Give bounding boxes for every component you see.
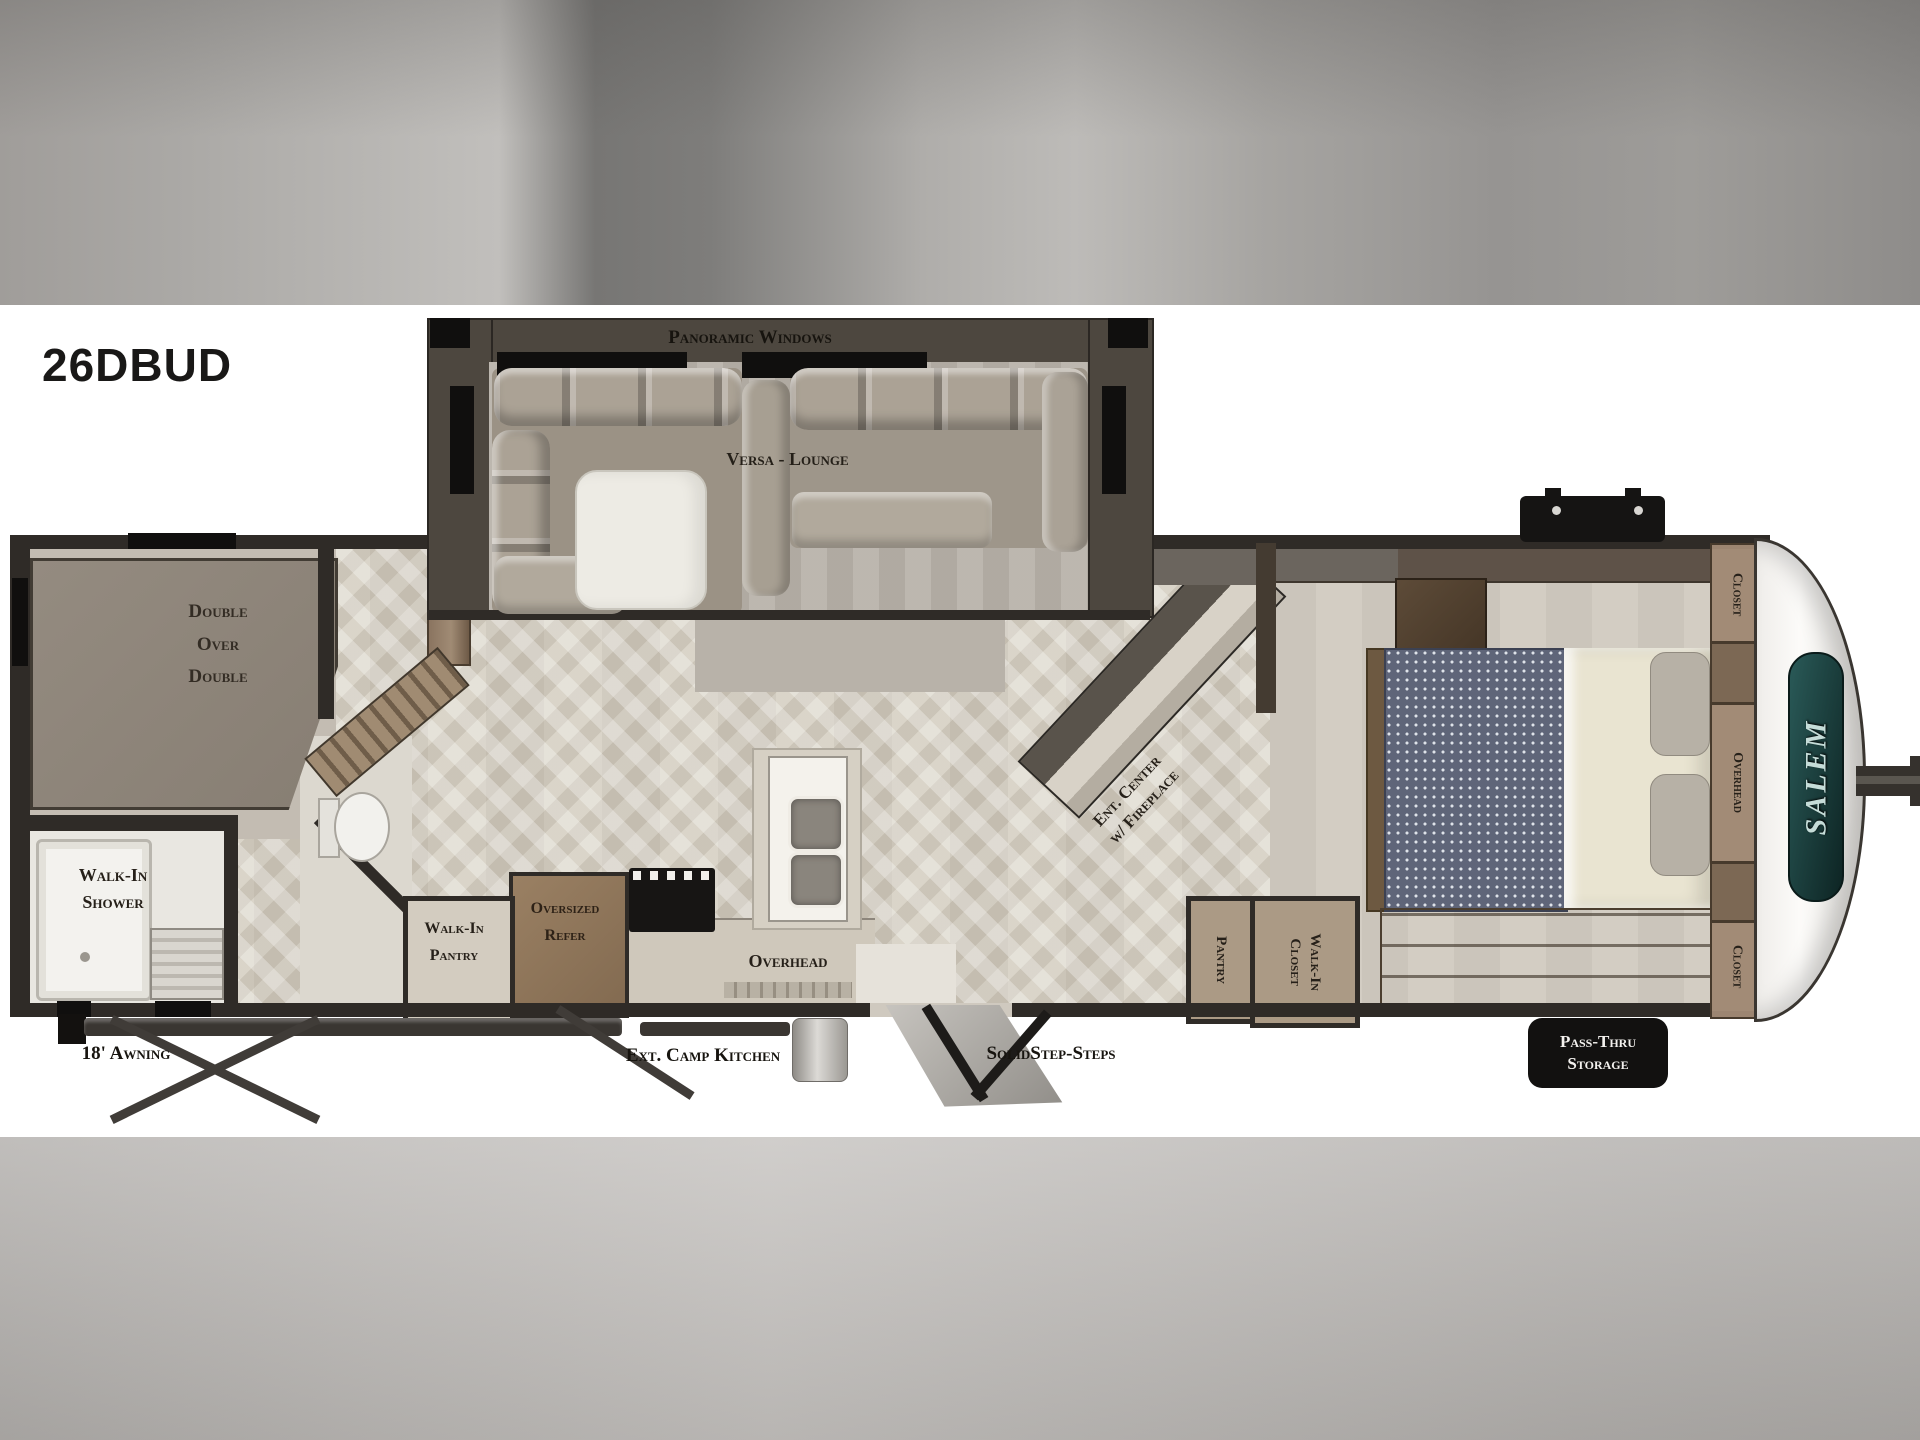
bedroom-overhead-cabinet xyxy=(1276,549,1712,583)
bottom-wall-window-2 xyxy=(155,1001,211,1017)
hall-pantry-label: Pantry xyxy=(1213,936,1229,984)
bedroom-pillar xyxy=(1256,543,1276,713)
tv-bracket-dot-right xyxy=(1634,506,1643,515)
pantry-label-line1: Walk-In xyxy=(407,920,501,937)
awning-bar xyxy=(84,1018,622,1036)
slide-side-window-left xyxy=(450,386,474,494)
model-title: 26DBUD xyxy=(42,338,302,398)
bunk-label-line2: Over xyxy=(138,635,298,656)
versa-lounge-label: Versa - Lounge xyxy=(700,450,875,476)
slide-corner-right xyxy=(1108,318,1148,348)
top-wall-window xyxy=(128,533,236,549)
awning-end-cap xyxy=(58,1014,86,1044)
bedroom-closet-top-label: Closet xyxy=(1729,573,1744,616)
shower-label-line1: Walk-In xyxy=(46,866,180,885)
shower-label-line2: Shower xyxy=(46,893,180,912)
bunk-label-line1: Double xyxy=(138,602,298,623)
sofa-right-armrest xyxy=(1042,372,1088,552)
kitchen-overhead-tambour xyxy=(724,982,852,998)
bed-mattress xyxy=(1384,648,1568,912)
steps-label: SolidStep-Steps xyxy=(966,1044,1136,1074)
pantry-label-line2: Pantry xyxy=(407,947,501,964)
bunk-label: Double Over Double xyxy=(138,602,298,720)
tv-bracket-tab-right xyxy=(1625,488,1641,500)
entry-mat xyxy=(856,944,956,1004)
pass-thru-badge: Pass-Thru Storage xyxy=(1528,1018,1668,1088)
awning-label: 18' Awning xyxy=(56,1044,196,1074)
sofa-left-back xyxy=(494,368,742,426)
sofa-right-cushion xyxy=(792,492,992,548)
slide-corner-left xyxy=(430,318,470,348)
refer-label-line1: Oversized xyxy=(513,900,617,917)
pantry-label: Walk-In Pantry xyxy=(407,920,501,984)
panoramic-windows-label: Panoramic Windows xyxy=(620,328,880,356)
shower-wall-right xyxy=(224,815,238,1015)
sink-bowl-lower xyxy=(788,852,844,908)
galley-overhead-cabinet xyxy=(1150,549,1258,585)
exterior-tv-bracket xyxy=(1520,496,1665,542)
slide-side-window-right xyxy=(1102,386,1126,494)
lounge-rug xyxy=(695,614,1005,692)
tv-bracket-dot-left xyxy=(1552,506,1561,515)
refer-label: Oversized Refer xyxy=(513,900,617,964)
stove-knobs xyxy=(633,871,711,880)
walkin-closet-label-line1: Walk-In xyxy=(1307,912,1323,1012)
camp-kitchen-label: Ext. Camp Kitchen xyxy=(608,1046,798,1076)
salem-logo-badge: SALEM xyxy=(1788,652,1844,902)
bed-base-dresser xyxy=(1380,908,1716,1008)
toilet-bowl xyxy=(334,792,390,862)
top-photo-band-shade xyxy=(0,0,1920,305)
rear-window xyxy=(12,578,28,666)
tv-bracket-tab-left xyxy=(1545,488,1561,500)
shower-wall-top xyxy=(10,815,238,831)
bunk-room-wall xyxy=(318,543,334,719)
hitch-bar-highlight xyxy=(1856,776,1920,784)
awning-bar-segment xyxy=(640,1022,790,1036)
bed-pillow-bottom xyxy=(1650,774,1710,876)
pass-thru-line2: Storage xyxy=(1567,1055,1628,1073)
shower-drain xyxy=(80,952,90,962)
camp-kitchen-tank xyxy=(792,1018,848,1082)
bunk-label-line3: Double xyxy=(138,667,298,688)
walkin-closet-label-line2: Closet xyxy=(1287,912,1303,1012)
bottom-photo-band-shade xyxy=(0,1137,1920,1440)
lounge-table xyxy=(575,470,707,610)
shower-bench xyxy=(150,928,224,1000)
refer-label-line2: Refer xyxy=(513,927,617,944)
walkin-closet-label: Walk-In Closet xyxy=(1287,912,1323,1012)
shower-label: Walk-In Shower xyxy=(46,866,180,930)
salem-logo-text: SALEM xyxy=(1799,719,1833,836)
pass-thru-line1: Pass-Thru xyxy=(1560,1033,1636,1051)
sink-bowl-upper xyxy=(788,796,844,852)
bed-pillow-top xyxy=(1650,652,1710,756)
bedroom-closet-bottom-label: Closet xyxy=(1729,945,1744,988)
floorplan-page: 26DBUD Double Over Double Walk-In Shower xyxy=(0,0,1920,1440)
kitchen-overhead-label: Overhead xyxy=(718,952,858,978)
bedroom-overhead-label: Overhead xyxy=(1729,753,1744,814)
sofa-divider-armrest xyxy=(742,380,790,596)
